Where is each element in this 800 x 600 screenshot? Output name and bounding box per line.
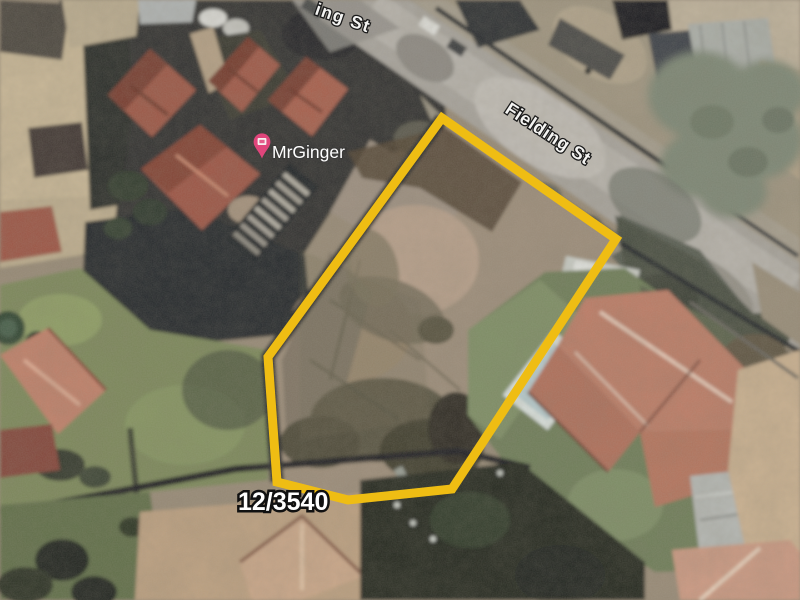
svg-text:MrGinger: MrGinger — [272, 142, 345, 162]
svg-text:12/3540: 12/3540 — [238, 488, 328, 516]
